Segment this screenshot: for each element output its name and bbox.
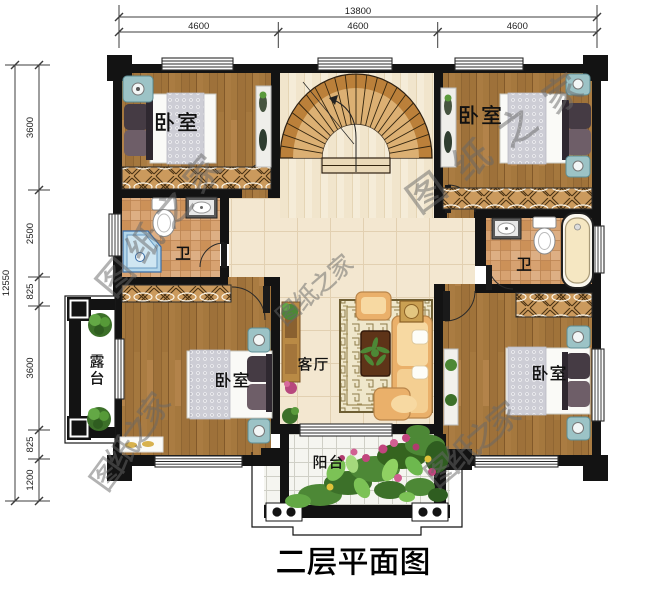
svg-text:1200: 1200	[25, 469, 36, 490]
svg-text:3600: 3600	[25, 357, 36, 378]
svg-text:825: 825	[25, 284, 36, 300]
svg-text:12550: 12550	[1, 270, 12, 296]
svg-text:3600: 3600	[25, 117, 36, 138]
svg-text:4600: 4600	[347, 21, 368, 32]
svg-text:2500: 2500	[25, 223, 36, 244]
svg-text:825: 825	[25, 437, 36, 453]
svg-text:4600: 4600	[188, 21, 209, 32]
svg-text:4600: 4600	[507, 21, 528, 32]
svg-text:13800: 13800	[345, 6, 371, 17]
